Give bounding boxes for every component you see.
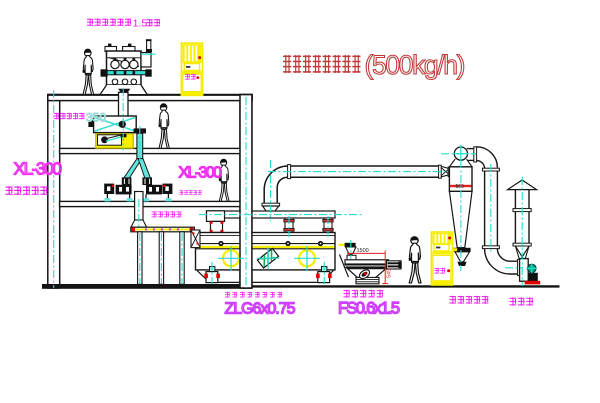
svg-text:XL-300: XL-300 <box>179 165 223 182</box>
svg-text:FS0.6x1.5: FS0.6x1.5 <box>338 300 400 318</box>
svg-text:(500kg/h): (500kg/h) <box>365 50 466 80</box>
svg-text:XL-300: XL-300 <box>14 159 63 179</box>
svg-text:500: 500 <box>456 184 465 190</box>
svg-text:ZLG6x0.75: ZLG6x0.75 <box>225 301 296 318</box>
svg-text:1.5: 1.5 <box>133 18 148 30</box>
svg-text:545: 545 <box>387 269 393 278</box>
svg-text:1500: 1500 <box>357 248 369 254</box>
svg-text:350: 350 <box>86 111 106 125</box>
